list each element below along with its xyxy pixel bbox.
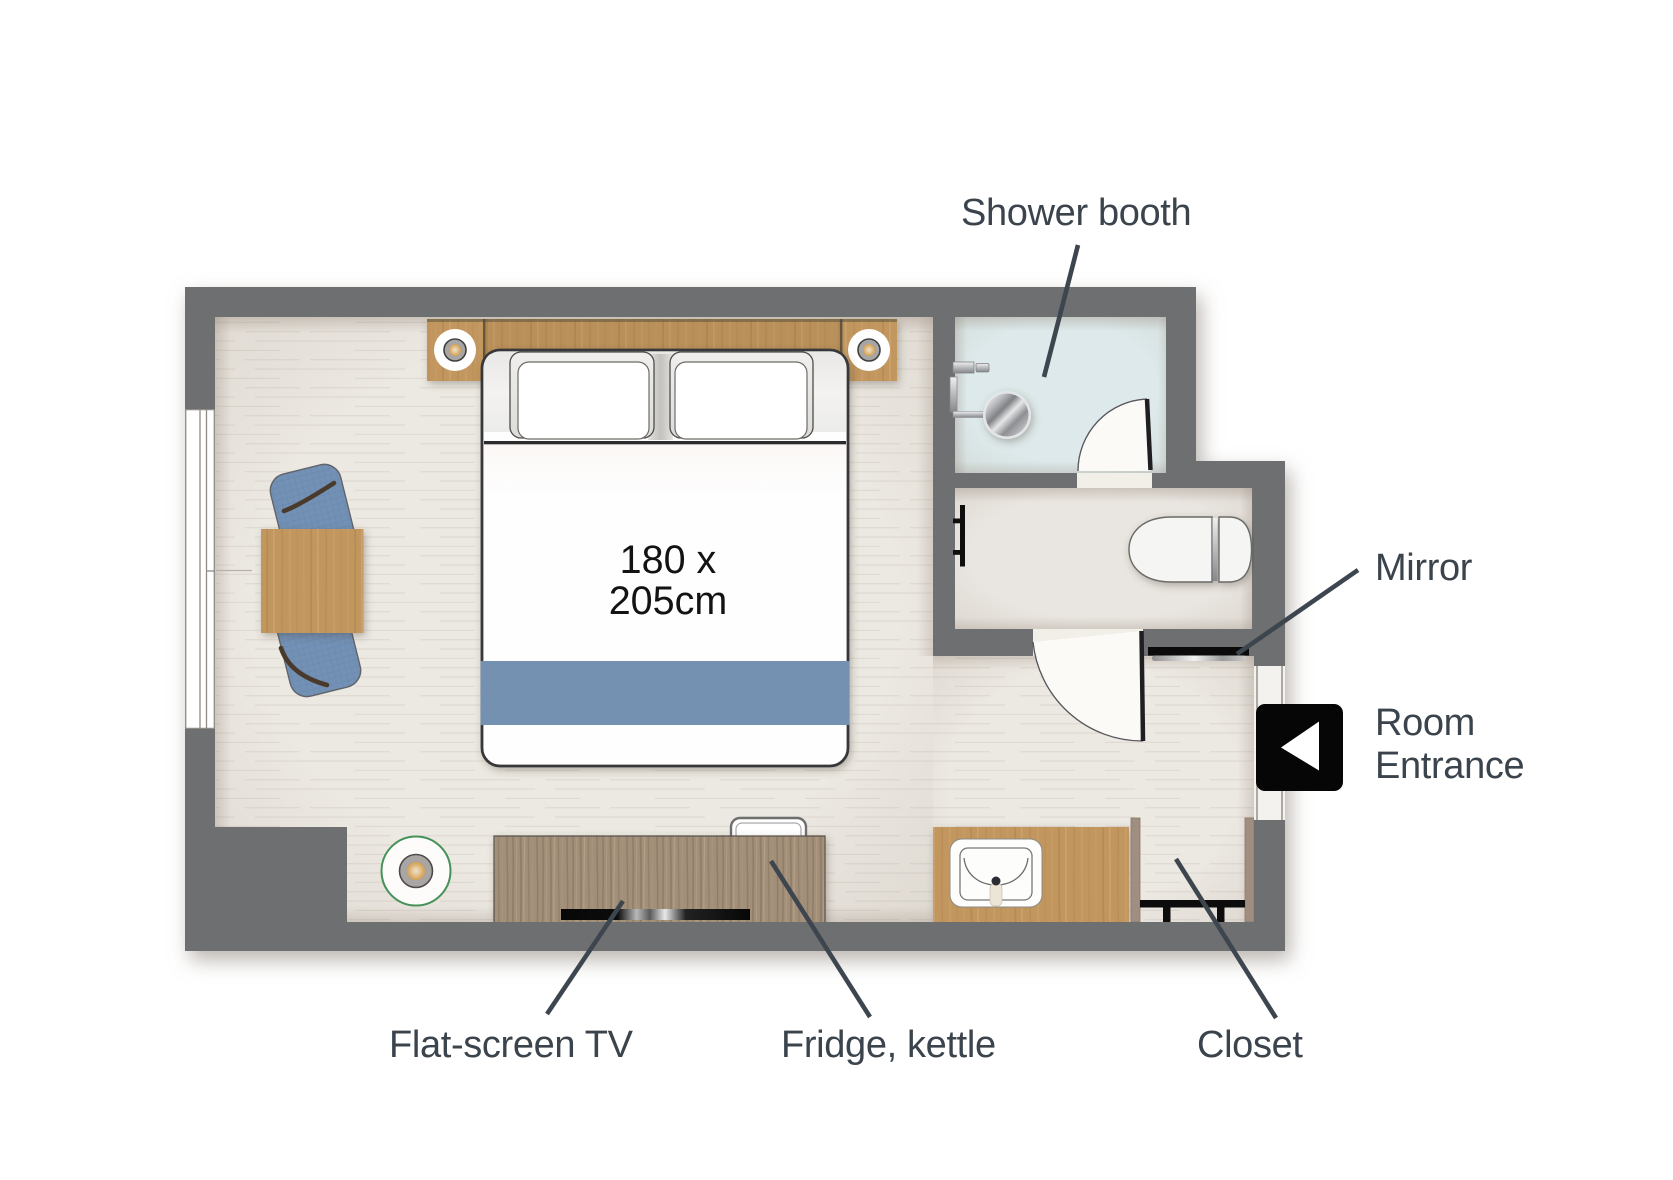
- svg-text:205cm: 205cm: [609, 579, 728, 623]
- svg-text:Mirror: Mirror: [1375, 547, 1473, 589]
- svg-text:Shower booth: Shower booth: [961, 192, 1191, 234]
- svg-text:Room: Room: [1375, 702, 1475, 744]
- svg-text:Entrance: Entrance: [1375, 745, 1524, 787]
- svg-text:Flat-screen TV: Flat-screen TV: [389, 1024, 634, 1066]
- svg-text:Fridge, kettle: Fridge, kettle: [781, 1024, 996, 1066]
- svg-text:180 x: 180 x: [620, 538, 717, 582]
- svg-text:Closet: Closet: [1197, 1024, 1303, 1066]
